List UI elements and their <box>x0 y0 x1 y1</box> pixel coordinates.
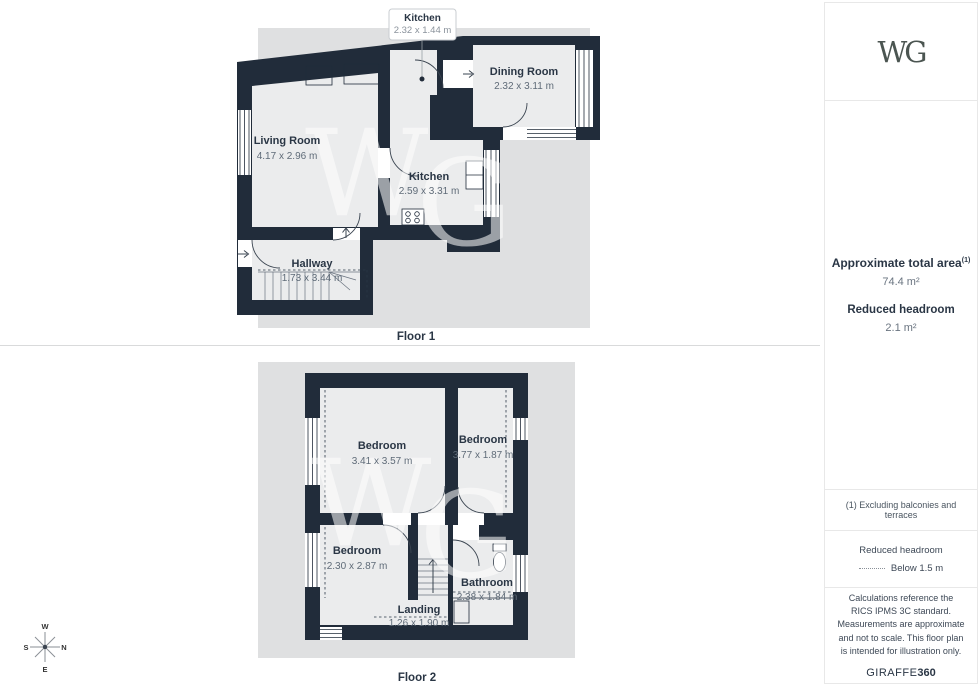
compass-west: W <box>41 622 49 631</box>
info-panel: WG Approximate total area(1) 74.4 m² Red… <box>824 2 978 684</box>
floorplan-canvas: WG Living Room 4.17 x 2.96 m Kitchen 2.5… <box>0 0 820 693</box>
legend-panel: Reduced headroom Below 1.5 m <box>824 531 978 588</box>
compass-south: S <box>23 643 28 652</box>
kitchen-label: Kitchen <box>409 171 450 183</box>
living-room-label: Living Room <box>254 135 321 147</box>
callout-room-label: Kitchen <box>404 13 441 24</box>
agency-logo-text: WG <box>878 35 925 69</box>
landing-dims: 1.26 x 1.90 m <box>389 618 450 629</box>
total-area-value: 74.4 m² <box>882 276 919 288</box>
bedroom2-label: Bedroom <box>459 434 508 446</box>
dining-room-dims: 2.32 x 3.11 m <box>494 81 554 92</box>
legend-value: Below 1.5 m <box>891 563 943 574</box>
total-area-footnote-ref: (1) <box>962 257 971 264</box>
compass-center <box>43 645 47 649</box>
window <box>238 110 251 175</box>
reduced-headroom-value: 2.1 m² <box>885 322 916 334</box>
compass-north: N <box>61 643 66 652</box>
floor2-label: Floor 2 <box>398 672 436 684</box>
giraffe360-brand: GIRAFFE360 <box>866 667 936 679</box>
dining-room-label: Dining Room <box>490 66 559 78</box>
floor1-label: Floor 1 <box>397 331 436 343</box>
bedroom3-label: Bedroom <box>333 545 382 557</box>
bedroom1-label: Bedroom <box>358 440 407 452</box>
callout-dot <box>420 77 425 82</box>
window <box>320 627 342 640</box>
living-room-dims: 4.17 x 2.96 m <box>257 151 318 162</box>
floor-divider-line <box>0 345 820 346</box>
bathroom-dims: 2.38 x 1.84 m <box>457 592 518 603</box>
bathroom-label: Bathroom <box>461 577 513 589</box>
bedroom1-dims: 3.41 x 3.57 m <box>352 456 413 467</box>
total-area-label: Approximate total area(1) <box>832 256 971 270</box>
reduced-headroom-label: Reduced headroom <box>847 304 954 316</box>
compass-east: E <box>42 665 47 674</box>
dotted-line-swatch <box>859 568 885 569</box>
floor2-plan: WG Bedroom 3.41 x 3.57 m Bedroom 3.77 x … <box>258 362 575 684</box>
disclaimer-panel: Calculations reference the RICS IPMS 3C … <box>824 588 978 684</box>
agency-logo: WG <box>824 2 978 101</box>
window <box>513 418 528 440</box>
compass: W N E S <box>23 622 66 674</box>
window <box>513 555 528 592</box>
callout-room-dims: 2.32 x 1.44 m <box>394 25 452 36</box>
floor1-plan: WG Living Room 4.17 x 2.96 m Kitchen 2.5… <box>237 9 600 343</box>
kitchen-dims: 2.59 x 3.31 m <box>399 186 460 197</box>
disclaimer-text: Calculations reference the RICS IPMS 3C … <box>837 592 965 657</box>
bedroom2-dims: 3.77 x 1.87 m <box>453 450 514 461</box>
landing-label: Landing <box>398 604 441 616</box>
hallway-dims: 1.73 x 3.44 m <box>282 273 343 284</box>
floorplan-page: WG Living Room 4.17 x 2.96 m Kitchen 2.5… <box>0 0 980 693</box>
bedroom3-dims: 2.30 x 2.87 m <box>327 561 388 572</box>
area-summary-panel: Approximate total area(1) 74.4 m² Reduce… <box>824 101 978 490</box>
window <box>527 127 576 140</box>
window <box>576 50 593 127</box>
hallway-label: Hallway <box>292 258 334 270</box>
legend-title: Reduced headroom <box>859 545 942 556</box>
footnote: (1) Excluding balconies and terraces <box>824 490 978 531</box>
